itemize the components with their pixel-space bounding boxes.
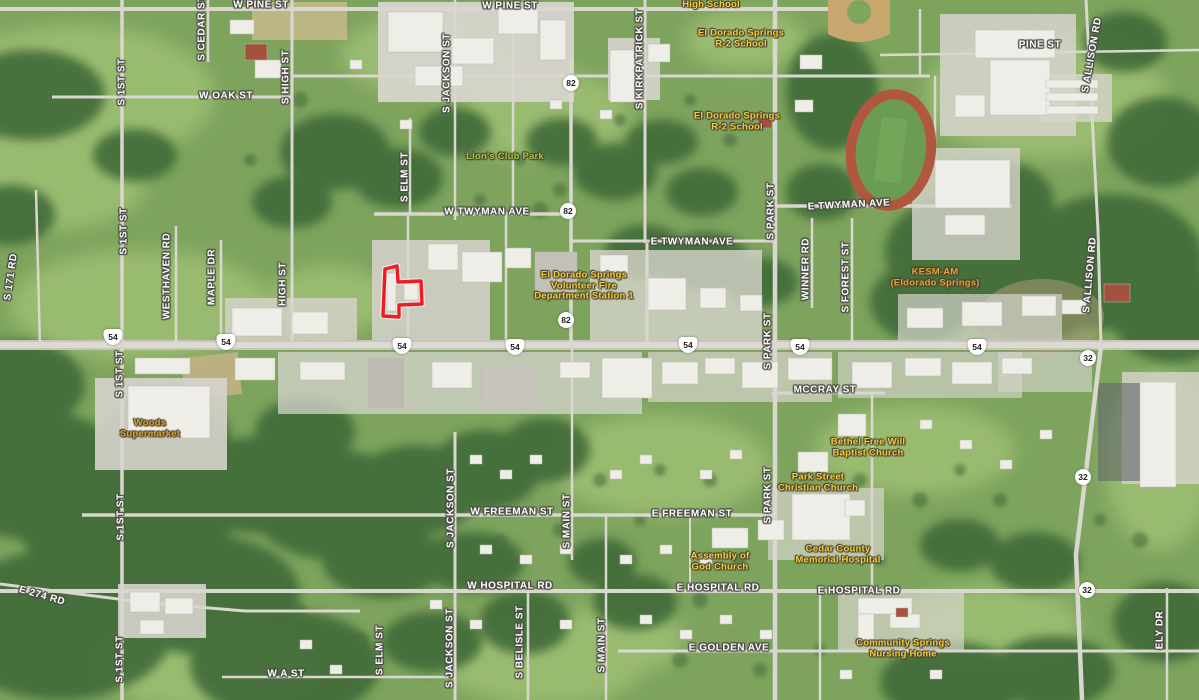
us-route-shield: 54 <box>791 339 810 355</box>
poi-label-line: R-2 School <box>698 39 784 50</box>
route-number: 54 <box>221 337 230 347</box>
street-label-vertical: HIGH ST <box>278 262 289 306</box>
street-label-vertical: S PARK ST <box>763 312 774 369</box>
route-number: 82 <box>563 206 572 216</box>
poi-label-line: El Dorado Springs <box>698 29 784 40</box>
street-label-vertical: S PARK ST <box>763 466 774 523</box>
poi-label-line: Christian Church <box>778 483 858 494</box>
street-label-vertical: S 1ST ST <box>117 58 128 105</box>
poi-label-line: Woods <box>120 419 180 430</box>
street-label-vertical: S BELISLE ST <box>515 605 526 678</box>
street-label: W A ST <box>267 669 304 680</box>
poi-label: Bethel Free WillBaptist Church <box>831 438 905 459</box>
map-labels-layer: W PINE STW PINE STPINE STW OAK STW TWYMA… <box>0 0 1199 700</box>
street-label-vertical: MAPLE DR <box>207 249 218 305</box>
street-label: E GOLDEN AVE <box>689 643 769 654</box>
poi-label-line: Baptist Church <box>831 448 905 459</box>
street-label: W PINE ST <box>233 0 289 11</box>
poi-label: Community SpringsNursing Home <box>856 639 950 660</box>
street-label-vertical: S 1ST ST <box>115 350 126 397</box>
us-route-shield: 54 <box>104 329 123 345</box>
us-route-shield: 54 <box>679 337 698 353</box>
us-route-shield: 54 <box>968 339 987 355</box>
street-label-vertical: S JACKSON ST <box>442 33 453 113</box>
route-number: 54 <box>397 341 406 351</box>
poi-label: Lion's Club Park <box>466 152 544 163</box>
street-label-vertical: S MAIN ST <box>597 617 608 672</box>
poi-label-line: Memorial Hospital <box>795 555 880 566</box>
poi-label-line: Community Springs <box>856 639 950 650</box>
route-number: 54 <box>683 340 692 350</box>
poi-label-line: Assembly of <box>691 552 750 563</box>
poi-label: Cedar CountyMemorial Hospital <box>795 545 880 566</box>
street-label: MCCRAY ST <box>794 385 857 396</box>
street-label: E TWYMAN AVE <box>651 237 734 248</box>
poi-label-line: Cedar County <box>795 545 880 556</box>
poi-label-line: Park Street <box>778 473 858 484</box>
street-label-vertical: S 1ST ST <box>116 493 127 540</box>
poi-label-line: High School <box>682 0 740 10</box>
street-label-vertical: ELY DR <box>1155 611 1166 650</box>
state-route-shield: 82 <box>560 203 576 219</box>
street-label: W PINE ST <box>482 1 538 12</box>
street-label: W OAK ST <box>199 91 253 102</box>
street-label-vertical: WESTHAVEN RD <box>162 233 173 319</box>
route-number: 54 <box>972 342 981 352</box>
street-label-vertical: S ELM ST <box>375 625 386 675</box>
street-label-vertical: S 171 RD <box>2 253 19 301</box>
street-label: E HOSPITAL RD <box>818 586 901 597</box>
state-route-shield: 82 <box>563 75 579 91</box>
street-label-vertical: S CEDAR ST <box>197 0 208 61</box>
route-number: 32 <box>1078 472 1087 482</box>
poi-label: High School <box>682 0 740 10</box>
poi-label-line: Lion's Club Park <box>466 152 544 163</box>
street-label-vertical: S KIRKPATRICK ST <box>635 9 646 109</box>
route-number: 32 <box>1082 585 1091 595</box>
poi-label: El Dorado SpringsVolunteer FireDepartmen… <box>534 270 634 302</box>
poi-label: Park StreetChristian Church <box>778 473 858 494</box>
poi-label-line: KESM-AM <box>890 268 979 279</box>
route-number: 54 <box>510 342 519 352</box>
street-label-vertical: S ALLISON RD <box>1081 237 1099 314</box>
street-label-vertical: S JACKSON ST <box>445 608 456 688</box>
poi-label-line: Department Station 1 <box>534 291 634 302</box>
street-label-vertical: S ELM ST <box>400 152 411 202</box>
street-label-vertical: S ALLISON RD <box>1080 17 1104 94</box>
street-label-vertical: S 1ST ST <box>115 635 126 682</box>
street-label-vertical: S JACKSON ST <box>446 468 457 548</box>
poi-label-line: Supermarket <box>120 429 180 440</box>
poi-label-line: God Church <box>691 562 750 573</box>
street-label-vertical: S 1ST ST <box>119 207 130 254</box>
poi-label: El Dorado SpringsR-2 School <box>698 29 784 50</box>
state-route-shield: 32 <box>1075 469 1091 485</box>
street-label-vertical: S PARK ST <box>766 182 777 239</box>
state-route-shield: 32 <box>1079 582 1095 598</box>
route-number: 54 <box>108 332 117 342</box>
street-label: W TWYMAN AVE <box>444 207 529 218</box>
us-route-shield: 54 <box>393 338 412 354</box>
poi-label: KESM-AM(Eldorado Springs) <box>890 268 979 289</box>
street-label-vertical: S MAIN ST <box>562 493 573 548</box>
route-number: 32 <box>1083 353 1092 363</box>
route-number: 54 <box>795 342 804 352</box>
street-label: E FREEMAN ST <box>652 509 732 520</box>
street-label: E HOSPITAL RD <box>677 583 760 594</box>
map-canvas[interactable]: W PINE STW PINE STPINE STW OAK STW TWYMA… <box>0 0 1199 700</box>
poi-label-line: El Dorado Springs <box>534 270 634 281</box>
poi-label: WoodsSupermarket <box>120 419 180 440</box>
street-label-vertical: S HIGH ST <box>281 50 292 105</box>
street-label-vertical: S FOREST ST <box>841 241 852 312</box>
poi-label-line: Nursing Home <box>856 649 950 660</box>
street-label: PINE ST <box>1019 40 1061 51</box>
street-label: E TWYMAN AVE <box>807 197 890 212</box>
street-label: W FREEMAN ST <box>470 507 553 518</box>
poi-label: El Dorado SpringsR-2 School <box>694 112 780 133</box>
us-route-shield: 54 <box>506 339 525 355</box>
state-route-shield: 82 <box>558 312 574 328</box>
poi-label-line: El Dorado Springs <box>694 112 780 123</box>
poi-label-line: Bethel Free Will <box>831 438 905 449</box>
poi-label: Assembly ofGod Church <box>691 552 750 573</box>
route-number: 82 <box>561 315 570 325</box>
poi-label-line: R-2 School <box>694 122 780 133</box>
street-label-vertical: WINNER RD <box>801 238 812 300</box>
us-route-shield: 54 <box>217 334 236 350</box>
state-route-shield: 32 <box>1080 350 1096 366</box>
poi-label-line: (Eldorado Springs) <box>890 278 979 289</box>
street-label: E 274 RD <box>18 584 67 608</box>
street-label: W HOSPITAL RD <box>467 581 553 592</box>
route-number: 82 <box>566 78 575 88</box>
